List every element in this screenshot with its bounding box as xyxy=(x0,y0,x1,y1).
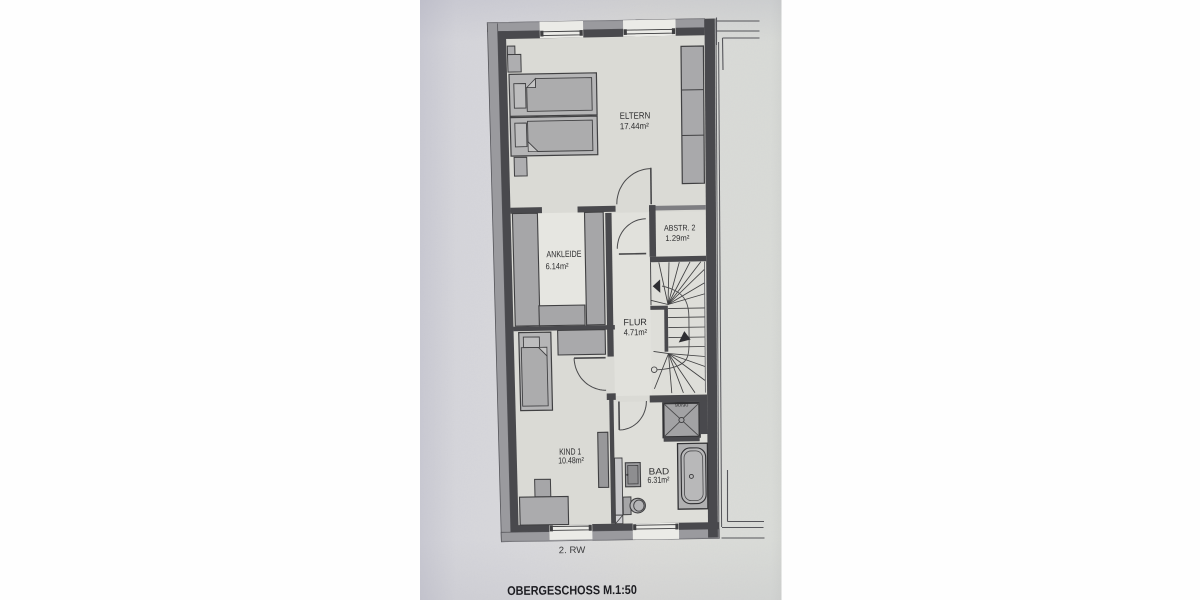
svg-text:4.71m²: 4.71m² xyxy=(624,327,648,337)
svg-text:OBERGESCHOSS M.1:50: OBERGESCHOSS M.1:50 xyxy=(507,583,637,598)
svg-text:FLUR: FLUR xyxy=(623,317,647,327)
svg-text:ELTERN: ELTERN xyxy=(620,110,651,120)
svg-text:17.44m²: 17.44m² xyxy=(620,121,649,131)
svg-text:1.29m²: 1.29m² xyxy=(665,234,689,243)
svg-text:ABSTR. 2: ABSTR. 2 xyxy=(664,223,696,232)
svg-text:6.31m²: 6.31m² xyxy=(647,475,669,485)
svg-text:ANKLEIDE: ANKLEIDE xyxy=(546,249,581,259)
svg-text:90/90: 90/90 xyxy=(675,403,689,408)
svg-text:10.48m²: 10.48m² xyxy=(558,455,584,465)
svg-text:2. RW: 2. RW xyxy=(559,544,586,555)
svg-text:6.14m²: 6.14m² xyxy=(545,261,568,271)
